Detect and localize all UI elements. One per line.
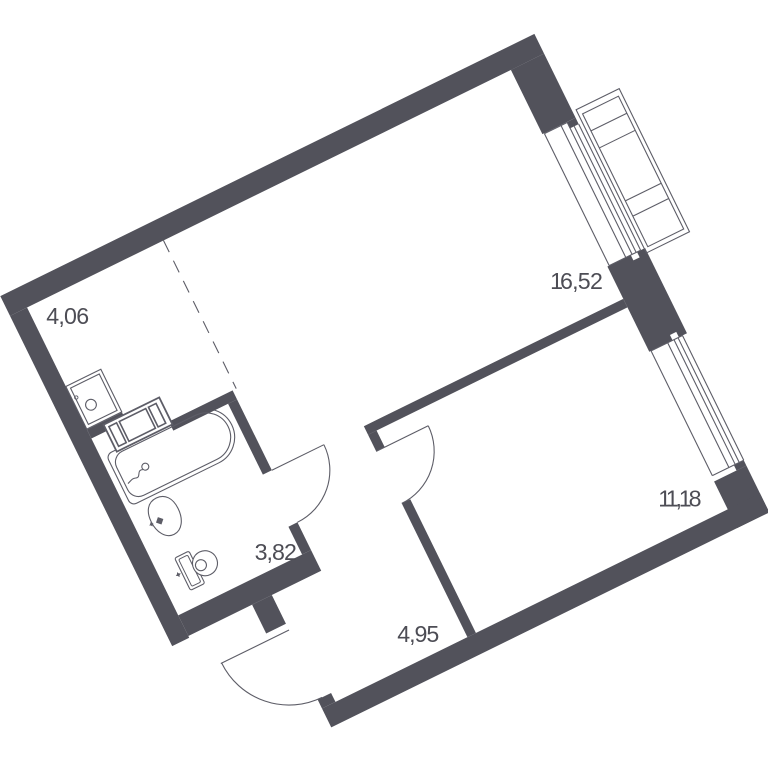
svg-text:6: 6: [76, 303, 89, 329]
svg-text:5: 5: [578, 268, 591, 294]
svg-text:8: 8: [689, 486, 702, 512]
svg-text:8: 8: [272, 539, 285, 565]
svg-text:2: 2: [284, 539, 297, 565]
svg-text:2: 2: [590, 268, 603, 294]
svg-text:0: 0: [64, 303, 77, 329]
svg-text:6: 6: [560, 268, 573, 294]
svg-text:5: 5: [426, 621, 439, 647]
svg-text:4: 4: [46, 303, 59, 329]
